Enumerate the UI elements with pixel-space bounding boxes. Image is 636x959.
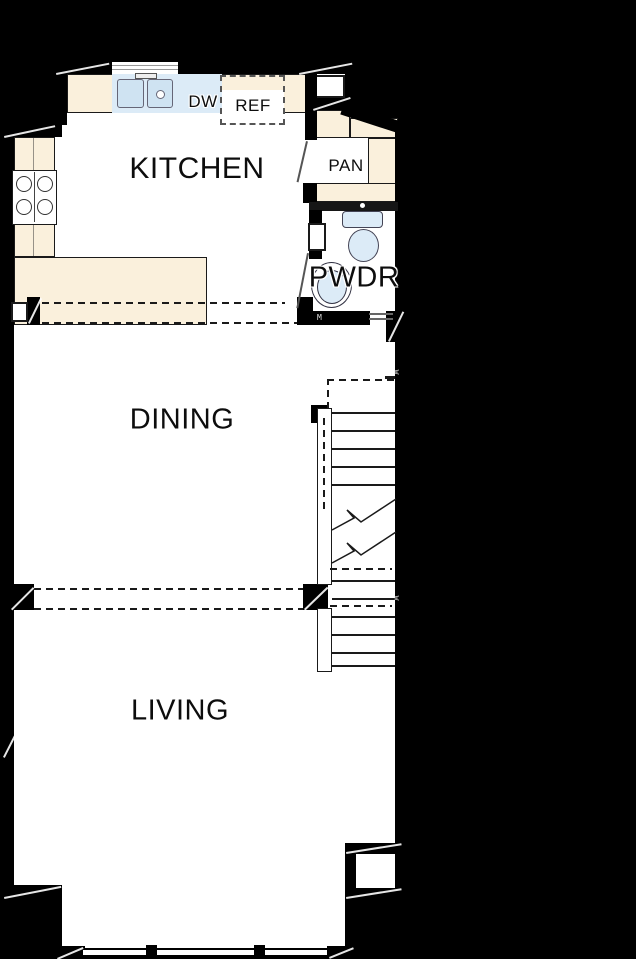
kitchen-label: KITCHEN (129, 152, 264, 186)
burner (16, 176, 32, 192)
dining-living-opening-dash-2 (34, 608, 303, 610)
dishwasher-label: DW (188, 92, 217, 112)
stair-stringer-dash (323, 414, 325, 509)
window-mullion-2 (254, 945, 265, 959)
stair-tread (332, 430, 395, 432)
wall-pantry-stub (303, 183, 317, 203)
sink-faucet (135, 73, 157, 79)
window-pane-line (112, 65, 178, 66)
wall-below-nook-fill (356, 899, 403, 949)
kitchen-dining-opening-dash-1 (42, 302, 285, 304)
stair-tread (332, 598, 395, 600)
pantry-label: PAN (328, 156, 363, 176)
dining-living-opening-dash-1 (34, 588, 303, 590)
powder-door-threshold (369, 318, 393, 320)
powder-label: PWDR (309, 262, 400, 295)
kitchen-dining-opening-dash-2 (42, 322, 297, 324)
kitchen-dining-jamb (11, 302, 28, 322)
stairwell-dash-1 (330, 568, 392, 570)
pantry-shelf-bottom (313, 183, 398, 202)
stair-tread (332, 616, 395, 618)
stair-overhead-dash-v (327, 379, 329, 409)
powder-shelf-box (308, 223, 326, 251)
dining-label: DINING (130, 404, 235, 437)
sink-drain (156, 90, 165, 99)
stair-stringer-lower (317, 608, 332, 672)
wall-powder-top (309, 202, 398, 211)
stair-tread (332, 634, 395, 636)
toilet-bowl (348, 229, 379, 262)
stair-tread (332, 665, 395, 667)
window-mullion-1 (146, 945, 157, 959)
powder-top-dot (360, 203, 365, 208)
stairwell-dash-2 (330, 605, 392, 607)
living-label: LIVING (131, 695, 229, 728)
stair-tread (332, 412, 395, 414)
stair-break-lines (330, 494, 398, 566)
wall-kitchen-east (305, 70, 317, 140)
closet-box (313, 75, 345, 98)
stair-tread (332, 466, 395, 468)
counter-peninsula (14, 257, 207, 325)
stair-wall-tag-upper: w (392, 370, 400, 375)
powder-door-threshold (369, 313, 393, 315)
counter-top-left (67, 74, 115, 113)
burner (37, 199, 53, 215)
toilet-tank (342, 211, 383, 228)
burner (16, 199, 32, 215)
cooktop-divider (34, 172, 35, 222)
window-glazing-line-bottom (83, 955, 329, 957)
window-pane-line (112, 69, 178, 70)
refrigerator-label: REF (235, 96, 271, 116)
burner (37, 176, 53, 192)
stair-tread (332, 580, 395, 582)
wall-powder-left-b (309, 251, 322, 259)
stair-tread (332, 484, 395, 486)
stair-wall-tag-lower: w (392, 596, 400, 601)
floor-plan-canvas: w w M KITCHEN DINING LIVING PWDR PAN DW … (0, 0, 636, 959)
powder-door-tag: M (317, 314, 322, 322)
wall-powder-left-a (309, 210, 322, 224)
stair-overhead-dash-h (327, 379, 397, 381)
stair-tread (332, 652, 395, 654)
stair-wall-tick (385, 376, 395, 379)
wall-left (2, 125, 14, 897)
sink-basin-left (117, 79, 144, 108)
stair-tread (332, 448, 395, 450)
cooktop (12, 170, 57, 225)
